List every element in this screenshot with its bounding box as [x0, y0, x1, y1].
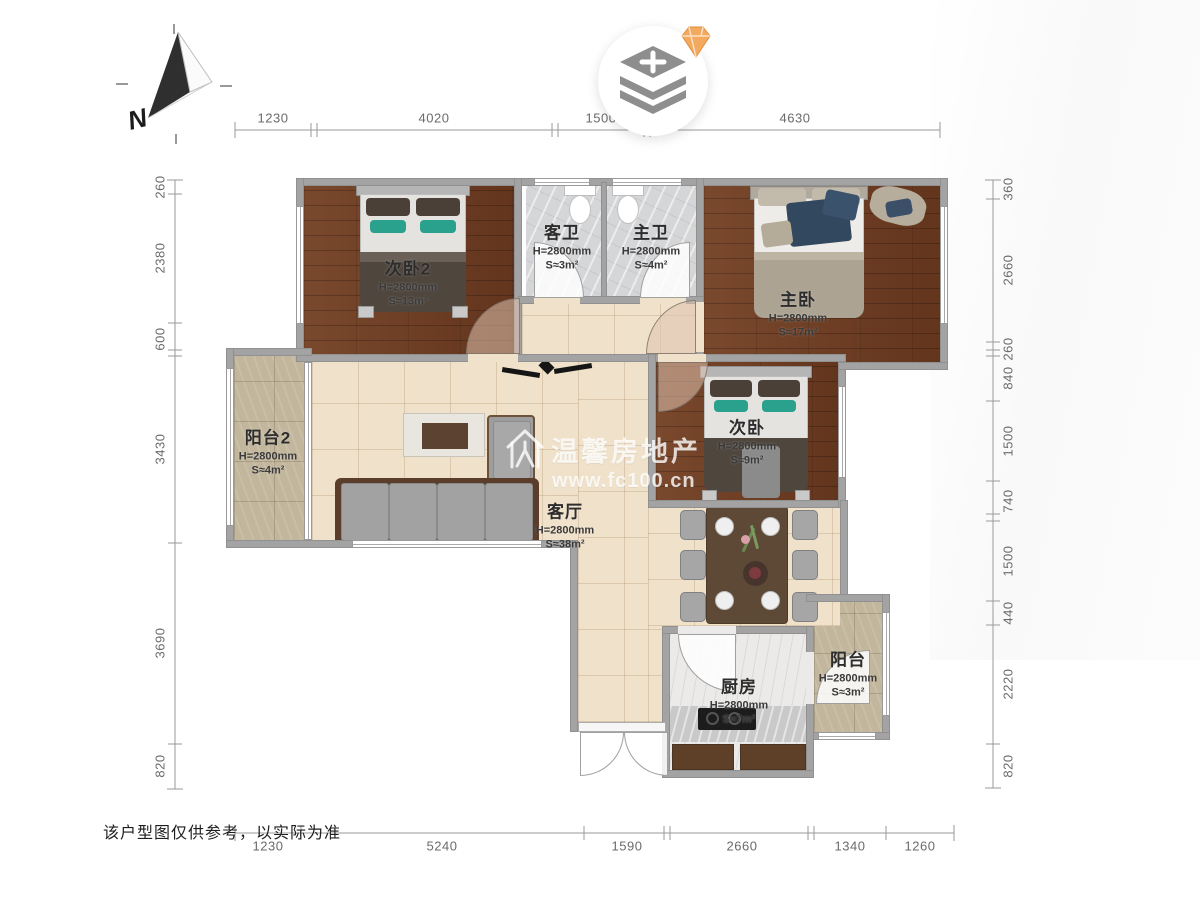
dim-left-5: 820	[153, 754, 168, 777]
dim-top-0: 1230	[258, 111, 289, 126]
window	[612, 178, 682, 186]
background-shade	[930, 0, 1200, 660]
room-height: H=2800mm	[819, 672, 877, 686]
window	[882, 612, 890, 716]
dim-right-3: 840	[1001, 366, 1016, 389]
door-opening	[678, 626, 736, 634]
room-name: 厨房	[721, 677, 757, 699]
wall-segment	[601, 182, 607, 300]
pillow-dark	[710, 380, 752, 397]
window	[534, 178, 590, 186]
room-area: S≈4m²	[252, 464, 285, 478]
wall-segment	[226, 348, 312, 356]
bed-foot	[358, 306, 374, 318]
kitchen-cabinet	[740, 744, 806, 770]
room-label-bedroom2: 次卧2 H=2800mm S≈13m²	[379, 259, 437, 310]
dim-top-1: 4020	[419, 111, 450, 126]
door-opening	[468, 354, 518, 362]
pillow-dark	[366, 198, 410, 216]
guest-bath-toilet	[564, 184, 596, 226]
room-area: S≈13m²	[388, 295, 427, 309]
room-name: 阳台2	[245, 428, 291, 450]
room-height: H=2800mm	[622, 245, 680, 259]
room-height: H=2800mm	[239, 450, 297, 464]
app-logo	[598, 26, 708, 136]
room-height: H=2800mm	[379, 281, 437, 295]
pillow-dark	[416, 198, 460, 216]
room-area: S≈4m²	[635, 259, 668, 273]
flower-blossom	[741, 535, 750, 544]
dim-right-8: 2220	[1001, 669, 1016, 700]
coffee-table-top	[422, 423, 468, 449]
room-height: H=2800mm	[769, 312, 827, 326]
room-label-living: 客厅 H=2800mm S≈38m²	[536, 502, 594, 553]
room-name: 次卧2	[385, 259, 431, 281]
sofa-cushion	[485, 483, 533, 541]
wall-segment	[570, 540, 578, 732]
dim-bottom-5: 1260	[905, 839, 936, 854]
bowl-inner	[749, 567, 761, 579]
room-area: S≈3m²	[546, 259, 579, 273]
dining-chair	[680, 592, 706, 622]
room-label-master-bedroom: 主卧 H=2800mm S≈17m²	[769, 290, 827, 341]
sofa-cushion	[389, 483, 437, 541]
dim-right-2: 260	[1001, 337, 1016, 360]
room-name: 主卫	[633, 223, 669, 245]
dim-left-4: 3690	[153, 628, 168, 659]
room-name: 阳台	[830, 650, 866, 672]
room-area: S≈38m²	[545, 538, 584, 552]
pillow-small	[760, 220, 793, 248]
dining-chair	[680, 550, 706, 580]
pillow-teal	[370, 220, 406, 233]
window	[352, 540, 542, 548]
entry-door-leaf-right	[624, 732, 668, 776]
wall-segment	[838, 362, 948, 370]
room-name: 客卫	[544, 223, 580, 245]
plate	[715, 591, 734, 610]
room-area: S≈3m²	[832, 686, 865, 700]
wall-segment	[662, 770, 814, 778]
dining-table	[706, 506, 788, 624]
dining-chair	[792, 550, 818, 580]
dim-right-6: 1500	[1001, 546, 1016, 577]
dim-right-5: 740	[1001, 489, 1016, 512]
window	[838, 386, 846, 478]
dim-right-4: 1500	[1001, 426, 1016, 457]
disclaimer-text: 该户型图仅供参考，以实际为准	[103, 819, 341, 843]
chaise-cushion	[493, 421, 531, 479]
room-height: H=2800mm	[533, 245, 591, 259]
dim-bottom-2: 1590	[612, 839, 643, 854]
blanket-fold	[754, 252, 864, 260]
room-label-bedroom: 次卧 H=2800mm S≈9m²	[718, 418, 776, 469]
tv-wing	[554, 363, 592, 374]
room-area: S≈7m²	[723, 713, 756, 727]
dim-right-9: 820	[1001, 754, 1016, 777]
dining-chair	[680, 510, 706, 540]
wall-segment	[840, 500, 848, 602]
wall-segment	[648, 354, 656, 508]
dim-top-3: 4630	[780, 111, 811, 126]
sliding-door	[304, 362, 312, 540]
window	[818, 732, 876, 740]
window	[226, 368, 234, 526]
dim-left-3: 3430	[153, 434, 168, 465]
dim-right-7: 440	[1001, 601, 1016, 624]
dim-left-2: 600	[153, 327, 168, 350]
room-height: H=2800mm	[718, 440, 776, 454]
dim-bottom-3: 2660	[727, 839, 758, 854]
floor-corridor-strip	[648, 626, 662, 722]
entry-door-leaf-left	[580, 732, 624, 776]
room-label-kitchen: 厨房 H=2800mm S≈7m²	[710, 677, 768, 728]
room-label-balcony: 阳台 H=2800mm S≈3m²	[819, 650, 877, 701]
room-height: H=2800mm	[710, 699, 768, 713]
sofa-cushion	[341, 483, 389, 541]
sofa-cushion	[437, 483, 485, 541]
dim-left-1: 2380	[153, 243, 168, 274]
room-area: S≈17m²	[778, 326, 817, 340]
toilet-bowl	[617, 195, 639, 224]
plate	[761, 517, 780, 536]
pillow-teal	[420, 220, 456, 233]
room-label-master-bath: 主卫 H=2800mm S≈4m²	[622, 223, 680, 274]
wall-segment	[648, 500, 846, 508]
pillow-teal	[714, 400, 748, 412]
tv-wing	[502, 367, 540, 378]
bed-foot	[452, 306, 468, 318]
master-bath-toilet	[612, 184, 644, 226]
coffee-table	[403, 413, 485, 457]
room-name: 主卧	[780, 290, 816, 312]
room-height: H=2800mm	[536, 524, 594, 538]
window	[296, 206, 304, 324]
door-opening	[658, 354, 706, 362]
toilet-bowl	[569, 195, 591, 224]
dim-bottom-4: 1340	[835, 839, 866, 854]
gem-icon	[676, 24, 714, 60]
room-label-guest-bath: 客卫 H=2800mm S≈3m²	[533, 223, 591, 274]
door-opening	[806, 652, 814, 704]
plate	[715, 517, 734, 536]
room-name: 客厅	[547, 502, 583, 524]
door-opening	[696, 302, 704, 352]
room-area: S≈9m²	[731, 454, 764, 468]
window	[940, 206, 948, 324]
dim-left-0: 260	[153, 175, 168, 198]
entry-threshold	[578, 722, 666, 732]
sofa-chaise	[487, 415, 535, 483]
floorplan-page: 次卧2 H=2800mm S≈13m² 客卫 H=2800mm S≈3m² 主卫…	[0, 0, 1200, 900]
sofa	[335, 478, 539, 546]
room-name: 次卧	[729, 418, 765, 440]
dim-right-0: 360	[1001, 177, 1016, 200]
wall-segment	[806, 594, 890, 602]
plate	[761, 591, 780, 610]
dim-right-1: 2660	[1001, 255, 1016, 286]
dim-bottom-1: 5240	[427, 839, 458, 854]
room-label-balcony2: 阳台2 H=2800mm S≈4m²	[239, 428, 297, 479]
pillow-dark	[758, 380, 800, 397]
kitchen-cabinet	[672, 744, 734, 770]
dining-chair	[792, 510, 818, 540]
pillow-teal	[762, 400, 796, 412]
